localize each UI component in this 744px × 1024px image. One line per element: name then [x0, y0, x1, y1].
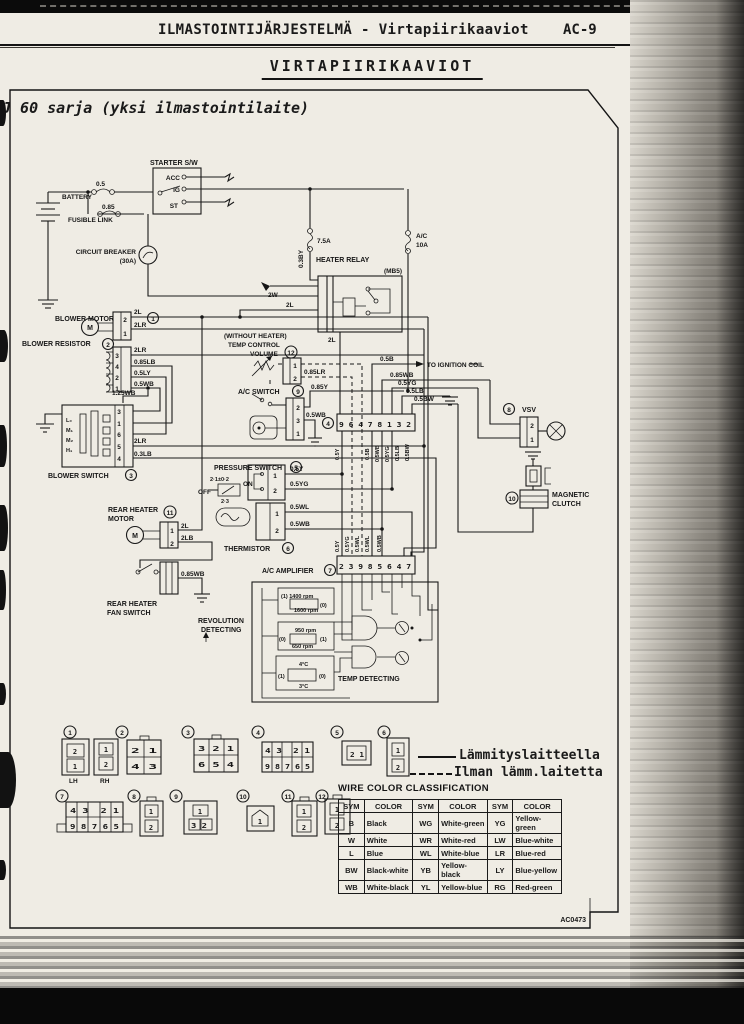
svg-text:2: 2: [115, 375, 119, 382]
bottom-connector-1: 1 2 1 1 2 LH RH: [62, 726, 118, 785]
wire-2lb-rear: 2LB: [181, 535, 194, 542]
svg-text:7: 7: [328, 568, 332, 575]
table-cell: White-blue: [439, 847, 488, 860]
svg-text:3 2: 3 2: [191, 822, 207, 830]
rpm-650-label: 650 rpm: [292, 644, 313, 650]
svg-text:2: 2: [170, 541, 174, 548]
bottom-connector-4: 4 4 3 2 1 9 8 7 6 5: [252, 726, 313, 772]
svg-text:2: 2: [120, 730, 124, 737]
svg-text:6 5 4: 6 5 4: [198, 761, 234, 769]
battery-label: BATTERY: [62, 194, 93, 201]
starter-switch-label: STARTER S/W: [150, 160, 198, 167]
wire-0-85y: 0.85Y: [311, 384, 329, 391]
fuse-0-5-label: 0.5: [96, 181, 105, 188]
circled-11: 11: [164, 506, 176, 518]
table-cell: L: [339, 847, 365, 860]
wire-0-5yg-ps: 0.5YG: [290, 481, 308, 488]
svg-text:3: 3: [296, 418, 300, 425]
thermistor-label: THERMISTOR: [224, 546, 270, 553]
bottom-connector-9: 9 1 3 2: [170, 790, 217, 834]
svg-text:3: 3: [117, 409, 121, 416]
circled-3: 3: [126, 470, 137, 481]
table-cell: Yellow-black: [439, 860, 488, 881]
ig-label: IG: [173, 187, 180, 194]
svg-text:11: 11: [167, 510, 174, 517]
wire-0-5wb-acsw: 0.5WB: [306, 412, 326, 419]
blower-switch-symbol: 3 1 6 5 4 L₀ M₁ M₂ H₁: [62, 405, 133, 467]
rpm-1600-label: 1600 rpm: [294, 608, 318, 614]
rh-label: RH: [100, 778, 110, 785]
svg-text:2 1: 2 1: [350, 751, 364, 759]
svg-text:11: 11: [285, 794, 292, 801]
table-cell: Black-white: [364, 860, 413, 881]
svg-text:6: 6: [117, 432, 121, 439]
table-cell: LW: [487, 834, 513, 847]
rpm2-marker-1: (1): [320, 637, 327, 643]
bottom-connector-8: 8 1 2: [128, 790, 163, 836]
rpm1-marker-0: (0): [320, 603, 327, 609]
fuse-ac-rating: 10A: [416, 242, 428, 249]
circled-8: 8: [504, 404, 515, 415]
svg-text:H₁: H₁: [66, 448, 73, 454]
table-row: BBlackWGWhite-greenYGYellow-green: [339, 813, 562, 834]
rear-heater-motor-symbol: M 1 2: [127, 522, 179, 548]
heater-relay-symbol: [318, 276, 402, 332]
blower-motor-label: BLOWER MOTOR: [55, 316, 114, 323]
table-cell: Yellow-green: [513, 813, 562, 834]
svg-text:2: 2: [293, 376, 297, 383]
svg-text:1: 1: [68, 730, 72, 737]
temp-marker-1: (1): [278, 674, 285, 680]
svg-text:2 1: 2 1: [131, 747, 157, 755]
blower-switch-ground: [36, 424, 54, 432]
fan-switch-ground: [194, 594, 210, 602]
svg-text:5: 5: [335, 730, 339, 737]
fusible-link-symbols: [92, 189, 121, 216]
wire-0-5ly: 0.5LY: [134, 370, 151, 377]
connector-4-strip: 9 6 4 7 8 1 3 2: [337, 414, 415, 431]
svg-text:1: 1: [396, 747, 400, 755]
circled-4: 4: [323, 418, 334, 429]
clutch-label: CLUTCH: [552, 501, 581, 508]
svg-text:1: 1: [302, 808, 306, 816]
svg-text:M₁: M₁: [66, 428, 74, 434]
circled-9: 9: [293, 386, 304, 397]
blower-resistor-label: BLOWER RESISTOR: [22, 341, 91, 348]
svg-text:M₂: M₂: [66, 438, 74, 444]
rpm-950-label: 950 rpm: [295, 628, 316, 634]
svg-text:10: 10: [239, 794, 247, 801]
wire-0-85lr: 0.85LR: [304, 369, 326, 376]
blower-resistor-symbol: 3 4 2 1: [106, 347, 131, 393]
circled-10: 10: [506, 492, 518, 504]
table-row: LBlueWLWhite-blueLRBlue-red: [339, 847, 562, 860]
svg-text:2: 2: [104, 761, 108, 769]
svg-text:1: 1: [293, 363, 297, 370]
svg-text:4: 4: [117, 456, 121, 463]
wire-2w: 2W: [268, 292, 279, 299]
table-cell: White-black: [364, 881, 413, 894]
svg-text:2: 2: [149, 824, 153, 832]
table-cell: WB: [339, 881, 365, 894]
table-cell: White-red: [439, 834, 488, 847]
amp-wire-0-5wl-2: 0.5WL: [365, 535, 371, 552]
svg-text:4 3: 4 3: [131, 763, 157, 771]
table-cell: BW: [339, 860, 365, 881]
heater-relay-label: HEATER RELAY: [316, 257, 370, 264]
wire-1-25wb: 1.25WB: [112, 390, 136, 397]
table-cell: White-green: [439, 813, 488, 834]
rear-heater-label-2: REAR HEATER: [107, 601, 157, 608]
rpm-1400-label: (1) 1400 rpm: [281, 594, 314, 600]
wire-2lr-blower: 2LR: [134, 322, 147, 329]
svg-text:6: 6: [286, 546, 290, 553]
svg-text:M: M: [132, 533, 138, 540]
bottom-connector-2: 2 2 1 4 3: [116, 726, 161, 774]
blower-switch-label: BLOWER SWITCH: [48, 473, 109, 480]
svg-text:8: 8: [132, 794, 136, 801]
col-sym-3: SYM: [487, 800, 513, 813]
svg-text:6: 6: [382, 730, 386, 737]
table-cell: Blue-red: [513, 847, 562, 860]
wire-0-85lb: 0.85LB: [134, 359, 156, 366]
wire-0-5wl: 0.5WL: [290, 504, 309, 511]
svg-text:9 8 7 6 5: 9 8 7 6 5: [265, 763, 310, 771]
table-cell: Black: [364, 813, 413, 834]
wire-0-5lb-v: 0.5LB: [395, 446, 401, 461]
circled-1: 1: [148, 313, 159, 324]
page-crease-line: [640, 733, 642, 795]
rpm2-marker-0: (0): [279, 637, 286, 643]
svg-text:5: 5: [117, 444, 121, 451]
bottom-connector-11: 11 1 2: [282, 790, 317, 836]
svg-text:4: 4: [115, 364, 119, 371]
rear-heater-label-1: REAR HEATER: [108, 507, 158, 514]
svg-text:1: 1: [117, 421, 121, 428]
table-cell: Blue: [364, 847, 413, 860]
svg-text:2: 2: [123, 317, 127, 324]
temp-3c-label: 3°C: [299, 684, 308, 690]
figure-code: AC0473: [560, 917, 586, 924]
ac-switch-symbol: 2 3 1: [250, 394, 304, 440]
ps-off-label: OFF: [198, 489, 211, 496]
col-sym-2: SYM: [413, 800, 439, 813]
circuit-breaker-label: CIRCUIT BREAKER: [76, 249, 137, 256]
svg-text:1: 1: [258, 818, 262, 826]
wire-0-3lb: 0.3LB: [134, 451, 152, 458]
table-cell: YL: [413, 881, 439, 894]
svg-text:9: 9: [174, 794, 178, 801]
fan-switch-label: FAN SWITCH: [107, 610, 151, 617]
svg-text:4 3 2 1: 4 3 2 1: [70, 807, 119, 815]
wire-2l-relay-out: 2L: [328, 337, 336, 344]
col-color-3: COLOR: [513, 800, 562, 813]
fuse-0-85-label: 0.85: [102, 204, 115, 211]
amp-wire-0-5y: 0.5Y: [335, 540, 341, 552]
svg-text:9 8 7 6 5: 9 8 7 6 5: [70, 823, 119, 831]
circled-6: 6: [283, 543, 294, 554]
wire-0-5b: 0.5B: [380, 356, 394, 363]
wire-0-5bw-up: 0.5BW: [414, 396, 435, 403]
svg-text:2: 2: [273, 488, 277, 495]
wire-2l-relay-in: 2L: [286, 302, 294, 309]
col-sym-1: SYM: [339, 800, 365, 813]
revolution-label: REVOLUTION: [198, 618, 244, 625]
wire-0-5lb-up: 0.5LB: [406, 388, 424, 395]
svg-text:4: 4: [256, 730, 260, 737]
detecting-label: DETECTING: [201, 627, 242, 634]
table-cell: White: [364, 834, 413, 847]
wire-color-table: SYM COLOR SYM COLOR SYM COLOR BBlackWGWh…: [338, 799, 562, 894]
temp-marker-0: (0): [319, 674, 326, 680]
magnetic-clutch-symbol: [520, 452, 551, 508]
fuse-7-5a-label: 7.5A: [317, 238, 331, 245]
svg-text:10: 10: [508, 496, 516, 503]
table-cell: Yellow-blue: [439, 881, 488, 894]
svg-text:12: 12: [287, 350, 295, 357]
svg-text:3: 3: [129, 473, 133, 480]
svg-text:1: 1: [104, 746, 108, 754]
table-cell: W: [339, 834, 365, 847]
ps-off-value: 2·3: [221, 499, 229, 505]
col-color-2: COLOR: [439, 800, 488, 813]
svg-text:2: 2: [396, 764, 400, 772]
circuit-breaker-symbol: [139, 246, 157, 264]
table-cell: Blue-white: [513, 834, 562, 847]
table-row: WBWhite-blackYLYellow-blueRGRed-green: [339, 881, 562, 894]
svg-text:3: 3: [186, 730, 190, 737]
bottom-connector-6: 6 1 2: [378, 726, 409, 776]
circled-12: 12: [285, 346, 297, 358]
table-cell: YG: [487, 813, 513, 834]
temp-control-volume-symbol: 1 2: [252, 356, 301, 384]
wire-2l-rear: 2L: [181, 523, 189, 530]
svg-text:2 3 9 8 5 6 4 7: 2 3 9 8 5 6 4 7: [339, 563, 411, 571]
wire-0-5wb-th: 0.5WB: [290, 521, 310, 528]
wire-0-5wb-resistor: 0.5WB: [134, 381, 154, 388]
table-cell: B: [339, 813, 365, 834]
table-cell: RG: [487, 881, 513, 894]
svg-text:9: 9: [296, 389, 300, 396]
table-cell: YB: [413, 860, 439, 881]
svg-text:1: 1: [273, 473, 277, 480]
svg-text:4: 4: [326, 421, 330, 428]
volume-label: VOLUME: [250, 351, 278, 358]
svg-text:1: 1: [198, 808, 202, 816]
wire-0-3by: 0.3BY: [298, 249, 305, 268]
amp-wire-0-5wb: 0.5WB: [377, 535, 383, 552]
lh-label: LH: [69, 778, 78, 785]
wire-0-85wb-fan: 0.85WB: [181, 571, 205, 578]
svg-text:2: 2: [302, 824, 306, 832]
svg-text:9 6 4 7 8 1 3 2: 9 6 4 7 8 1 3 2: [339, 421, 411, 429]
table-row: WWhiteWRWhite-redLWBlue-white: [339, 834, 562, 847]
wire-0-85wb-up: 0.85WB: [390, 372, 414, 379]
circled-7: 7: [325, 565, 336, 576]
wire-0-5yg-v: 0.5YG: [385, 446, 391, 462]
wire-0-5b-v: 0.5B: [365, 448, 371, 460]
thermistor-symbol: 1 2: [216, 503, 285, 540]
rear-heater-motor-label: MOTOR: [108, 516, 134, 523]
svg-text:1: 1: [296, 431, 300, 438]
table-row: BWBlack-whiteYBYellow-blackLYBlue-yellow: [339, 860, 562, 881]
legend-dashed-line: [410, 773, 452, 775]
svg-text:1: 1: [530, 437, 534, 444]
circled-2: 2: [103, 339, 114, 350]
ac-switch-label: A/C SWITCH: [238, 389, 280, 396]
circuit-breaker-rating: (30A): [120, 258, 136, 265]
wire-2lr-switch: 2LR: [134, 438, 147, 445]
svg-text:1: 1: [151, 316, 155, 323]
vsv-label: VSV: [522, 407, 536, 414]
svg-text:1: 1: [170, 528, 174, 535]
amp-wire-0-5yg: 0.5YG: [345, 536, 351, 552]
wire-2lr-resistor: 2LR: [134, 347, 147, 354]
ac-switch-ground: [308, 438, 322, 446]
wire-0-5y-v: 0.5Y: [335, 448, 341, 460]
svg-text:8: 8: [507, 407, 511, 414]
wire-0-5yg-up: 0.5YG: [398, 380, 416, 387]
fuse-7-5a-symbol: [308, 229, 313, 252]
wire-0-5wb-v: 0.5WB: [375, 445, 381, 462]
svg-text:1: 1: [275, 511, 279, 518]
svg-text:1: 1: [123, 331, 127, 338]
svg-text:1: 1: [73, 763, 77, 771]
svg-text:3 2 1: 3 2 1: [198, 745, 234, 753]
svg-text:7: 7: [60, 794, 64, 801]
wire-2l-blower: 2L: [134, 309, 142, 316]
temp-detecting-label: TEMP DETECTING: [338, 676, 400, 683]
table-cell: Red-green: [513, 881, 562, 894]
fuse-ac-10a-symbol: [406, 231, 411, 254]
svg-text:2: 2: [296, 405, 300, 412]
svg-text:4 3 2 1: 4 3 2 1: [265, 747, 310, 755]
wire-0-5bw-v: 0.5BW: [405, 443, 411, 461]
amplifier-strip: 2 3 9 8 5 6 4 7: [337, 556, 415, 574]
legend-without-heater: Ilman lämm.laitetta: [454, 765, 603, 780]
svg-text:2: 2: [530, 423, 534, 430]
svg-text:M: M: [87, 325, 93, 332]
svg-text:2: 2: [275, 528, 279, 535]
wire-0-5y: 0.5Y: [290, 466, 304, 473]
table-cell: Blue-yellow: [513, 860, 562, 881]
magnetic-label: MAGNETIC: [552, 492, 589, 499]
table-cell: LR: [487, 847, 513, 860]
svg-text:2: 2: [106, 342, 110, 349]
ps-on-value: 2·1±0·2: [210, 477, 229, 483]
fuse-ac-label: A/C: [416, 233, 428, 240]
table-header-row: SYM COLOR SYM COLOR SYM COLOR: [339, 800, 562, 813]
svg-text:2: 2: [73, 748, 77, 756]
st-label: ST: [170, 203, 178, 210]
temp-4c-label: 4°C: [299, 662, 308, 668]
table-cell: WG: [413, 813, 439, 834]
legend-with-heater: Lämmityslaitteella: [459, 748, 600, 763]
table-cell: WR: [413, 834, 439, 847]
bottom-connector-3: 3 3 2 1 6 5 4: [182, 726, 238, 772]
wire-color-classification: WIRE COLOR CLASSIFICATION SYM COLOR SYM …: [338, 783, 562, 894]
bottom-connector-5: 5 2 1: [331, 726, 371, 765]
col-color-1: COLOR: [364, 800, 413, 813]
amp-wire-0-5wl-1: 0.5WL: [355, 535, 361, 552]
svg-text:3: 3: [115, 353, 119, 360]
rear-heater-fan-switch-symbol: [136, 562, 178, 594]
svg-text:1: 1: [149, 808, 153, 816]
to-ignition-coil-label: TO IGNITION COIL: [427, 362, 484, 369]
table-cell: LY: [487, 860, 513, 881]
heater-relay-code: (MB5): [384, 268, 402, 275]
vsv-symbol: 2 1: [520, 417, 565, 447]
svg-text:L₀: L₀: [66, 418, 72, 424]
legend-solid-line: [418, 756, 456, 758]
temp-control-label: TEMP CONTROL: [228, 342, 280, 349]
without-heater-label: (WITHOUT HEATER): [224, 333, 287, 340]
bottom-connector-7: 7 4 3 2 1 9 8 7 6 5: [56, 790, 132, 832]
wire-color-table-title: WIRE COLOR CLASSIFICATION: [338, 783, 562, 794]
table-cell: WL: [413, 847, 439, 860]
ac-amplifier-label: A/C AMPLIFIER: [262, 568, 313, 575]
bottom-connector-10: 10 1: [237, 790, 274, 831]
fusible-link-label: FUSIBLE LINK: [68, 217, 113, 224]
acc-label: ACC: [166, 175, 180, 182]
